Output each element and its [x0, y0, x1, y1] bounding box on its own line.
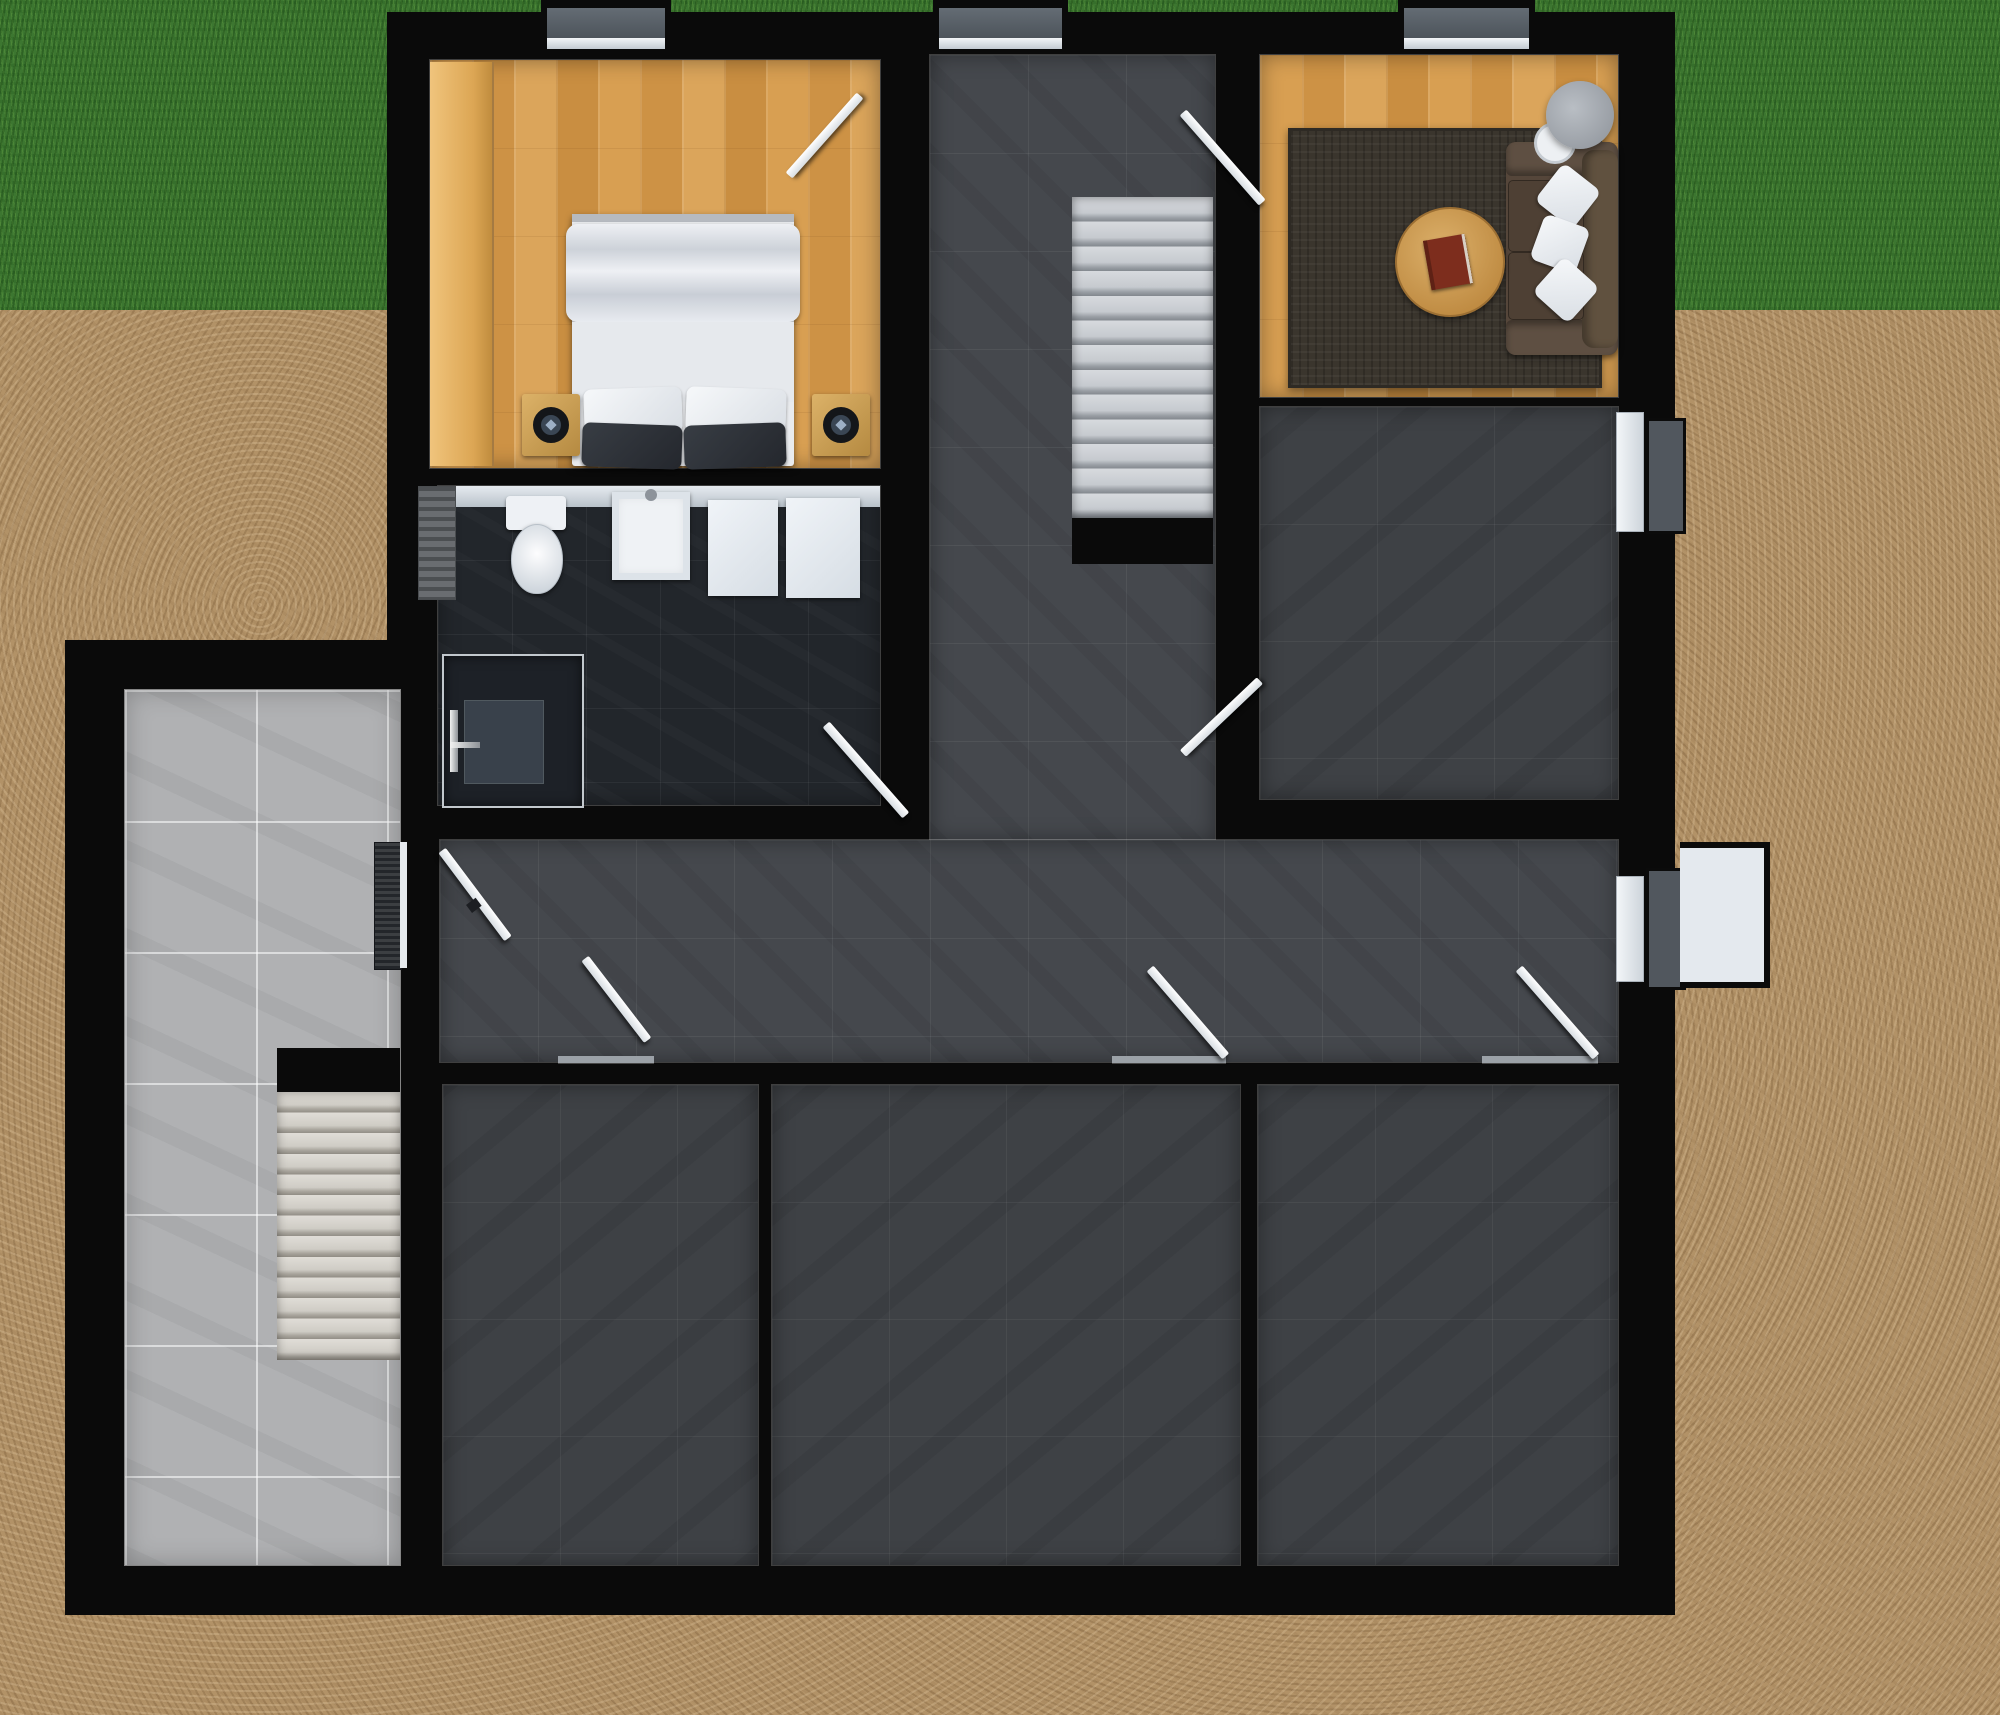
bed-pillow-dark-left [581, 422, 682, 469]
storage-right-floor [1258, 1085, 1618, 1565]
stair-void [1072, 518, 1213, 564]
floorplan-render [0, 0, 2000, 1715]
radiator [418, 486, 456, 600]
book [1423, 234, 1473, 291]
storage-left-door-sill [558, 1056, 654, 1063]
wardrobe-panel [430, 62, 494, 466]
interior-staircase [1072, 197, 1213, 518]
speaker-right [812, 394, 870, 456]
storage-left-floor [443, 1085, 758, 1565]
shower-arm [450, 742, 480, 748]
washbasin [612, 492, 690, 580]
storage-middle-door-sill [1112, 1056, 1226, 1063]
terrace-stair-wall [277, 1048, 400, 1092]
window-glass [547, 8, 665, 38]
speaker-left [522, 394, 580, 456]
window-sill [547, 38, 665, 49]
shower-valve [450, 710, 458, 772]
bed-duvet [566, 224, 800, 322]
toilet-bowl [511, 524, 563, 594]
corridor-window-well [1680, 842, 1770, 988]
corridor-floor [440, 840, 1618, 1062]
corridor-window-sill [1616, 876, 1644, 982]
utility-window-well [1646, 418, 1686, 534]
shower-cabin [442, 654, 584, 808]
exterior-staircase [277, 1092, 400, 1360]
stair-hall-window-well [933, 0, 1068, 58]
utility-room-floor [1260, 407, 1618, 799]
bed-pillow-dark-right [683, 422, 786, 470]
bed-foot-rail [572, 214, 794, 222]
floor-lamp-shade [1546, 81, 1614, 149]
storage-right-door-sill [1482, 1056, 1598, 1063]
window-sill [939, 38, 1062, 49]
sofa-backrest [1582, 150, 1618, 348]
living-room-window-well [1398, 0, 1535, 58]
window-glass [1404, 8, 1529, 38]
bath-mat-1 [708, 500, 778, 596]
bath-mat-2 [786, 498, 860, 598]
faucet [645, 489, 657, 501]
entry-floor-grate [374, 842, 402, 970]
entry-threshold [400, 842, 407, 968]
window-sill [1404, 38, 1529, 49]
bedroom-window-well [541, 0, 671, 58]
window-glass [939, 8, 1062, 38]
storage-middle-floor [772, 1085, 1240, 1565]
utility-window-sill [1616, 412, 1644, 532]
